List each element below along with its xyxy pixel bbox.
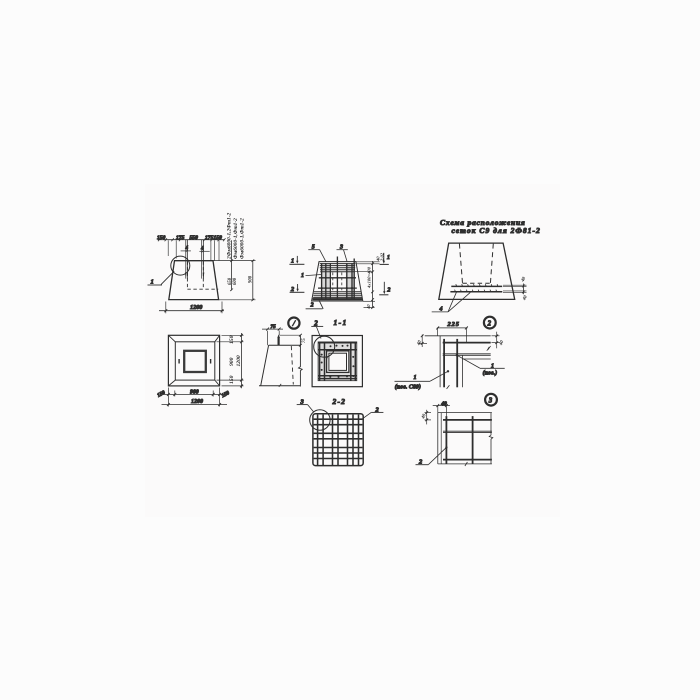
svg-text:900: 900 [229, 357, 235, 366]
svg-text:175: 175 [176, 235, 185, 241]
svg-text:1: 1 [387, 254, 390, 261]
svg-text:4х100=400: 4х100=400 [367, 266, 372, 289]
svg-text:150: 150 [229, 375, 235, 384]
svg-text:1200: 1200 [236, 355, 242, 366]
svg-text:Фм6000-1,Фт1-2: Фм6000-1,Фт1-2 [233, 218, 239, 259]
svg-text:(пов. С09): (пов. С09) [395, 383, 421, 390]
svg-text:225: 225 [447, 321, 460, 328]
svg-text:1-1: 1-1 [334, 318, 348, 327]
svg-text:2: 2 [386, 287, 390, 294]
svg-text:150: 150 [157, 235, 166, 241]
svg-text:150: 150 [214, 235, 223, 241]
svg-text:75: 75 [302, 338, 307, 343]
svg-text:2-2: 2-2 [332, 397, 347, 406]
svg-text:1: 1 [301, 273, 304, 279]
svg-text:4: 4 [185, 246, 189, 251]
svg-text:1200: 1200 [191, 399, 203, 405]
svg-text:600: 600 [233, 277, 238, 285]
svg-text:2: 2 [310, 302, 314, 308]
svg-text:1200: 1200 [190, 304, 202, 311]
svg-text:1: 1 [291, 258, 294, 265]
svg-text:Фм6000-1,Фт1-2: Фм6000-1,Фт1-2 [240, 218, 246, 259]
svg-text:900: 900 [190, 390, 199, 396]
svg-text:3: 3 [488, 398, 493, 405]
svg-text:2.02: 2.02 [380, 252, 385, 262]
svg-text:сеток С9 для 2Ф81-2: сеток С9 для 2Ф81-2 [452, 226, 541, 235]
svg-text:40: 40 [366, 304, 371, 310]
svg-text:75: 75 [271, 324, 277, 330]
svg-text:150: 150 [229, 335, 235, 344]
svg-text:1: 1 [491, 363, 494, 369]
svg-text:1: 1 [151, 279, 154, 286]
svg-text:550: 550 [190, 235, 199, 241]
svg-text:(пов.): (пов.) [483, 369, 498, 376]
svg-text:175: 175 [205, 235, 214, 241]
svg-text:2: 2 [487, 320, 492, 327]
svg-text:1: 1 [414, 375, 417, 381]
svg-text:2: 2 [290, 286, 294, 293]
